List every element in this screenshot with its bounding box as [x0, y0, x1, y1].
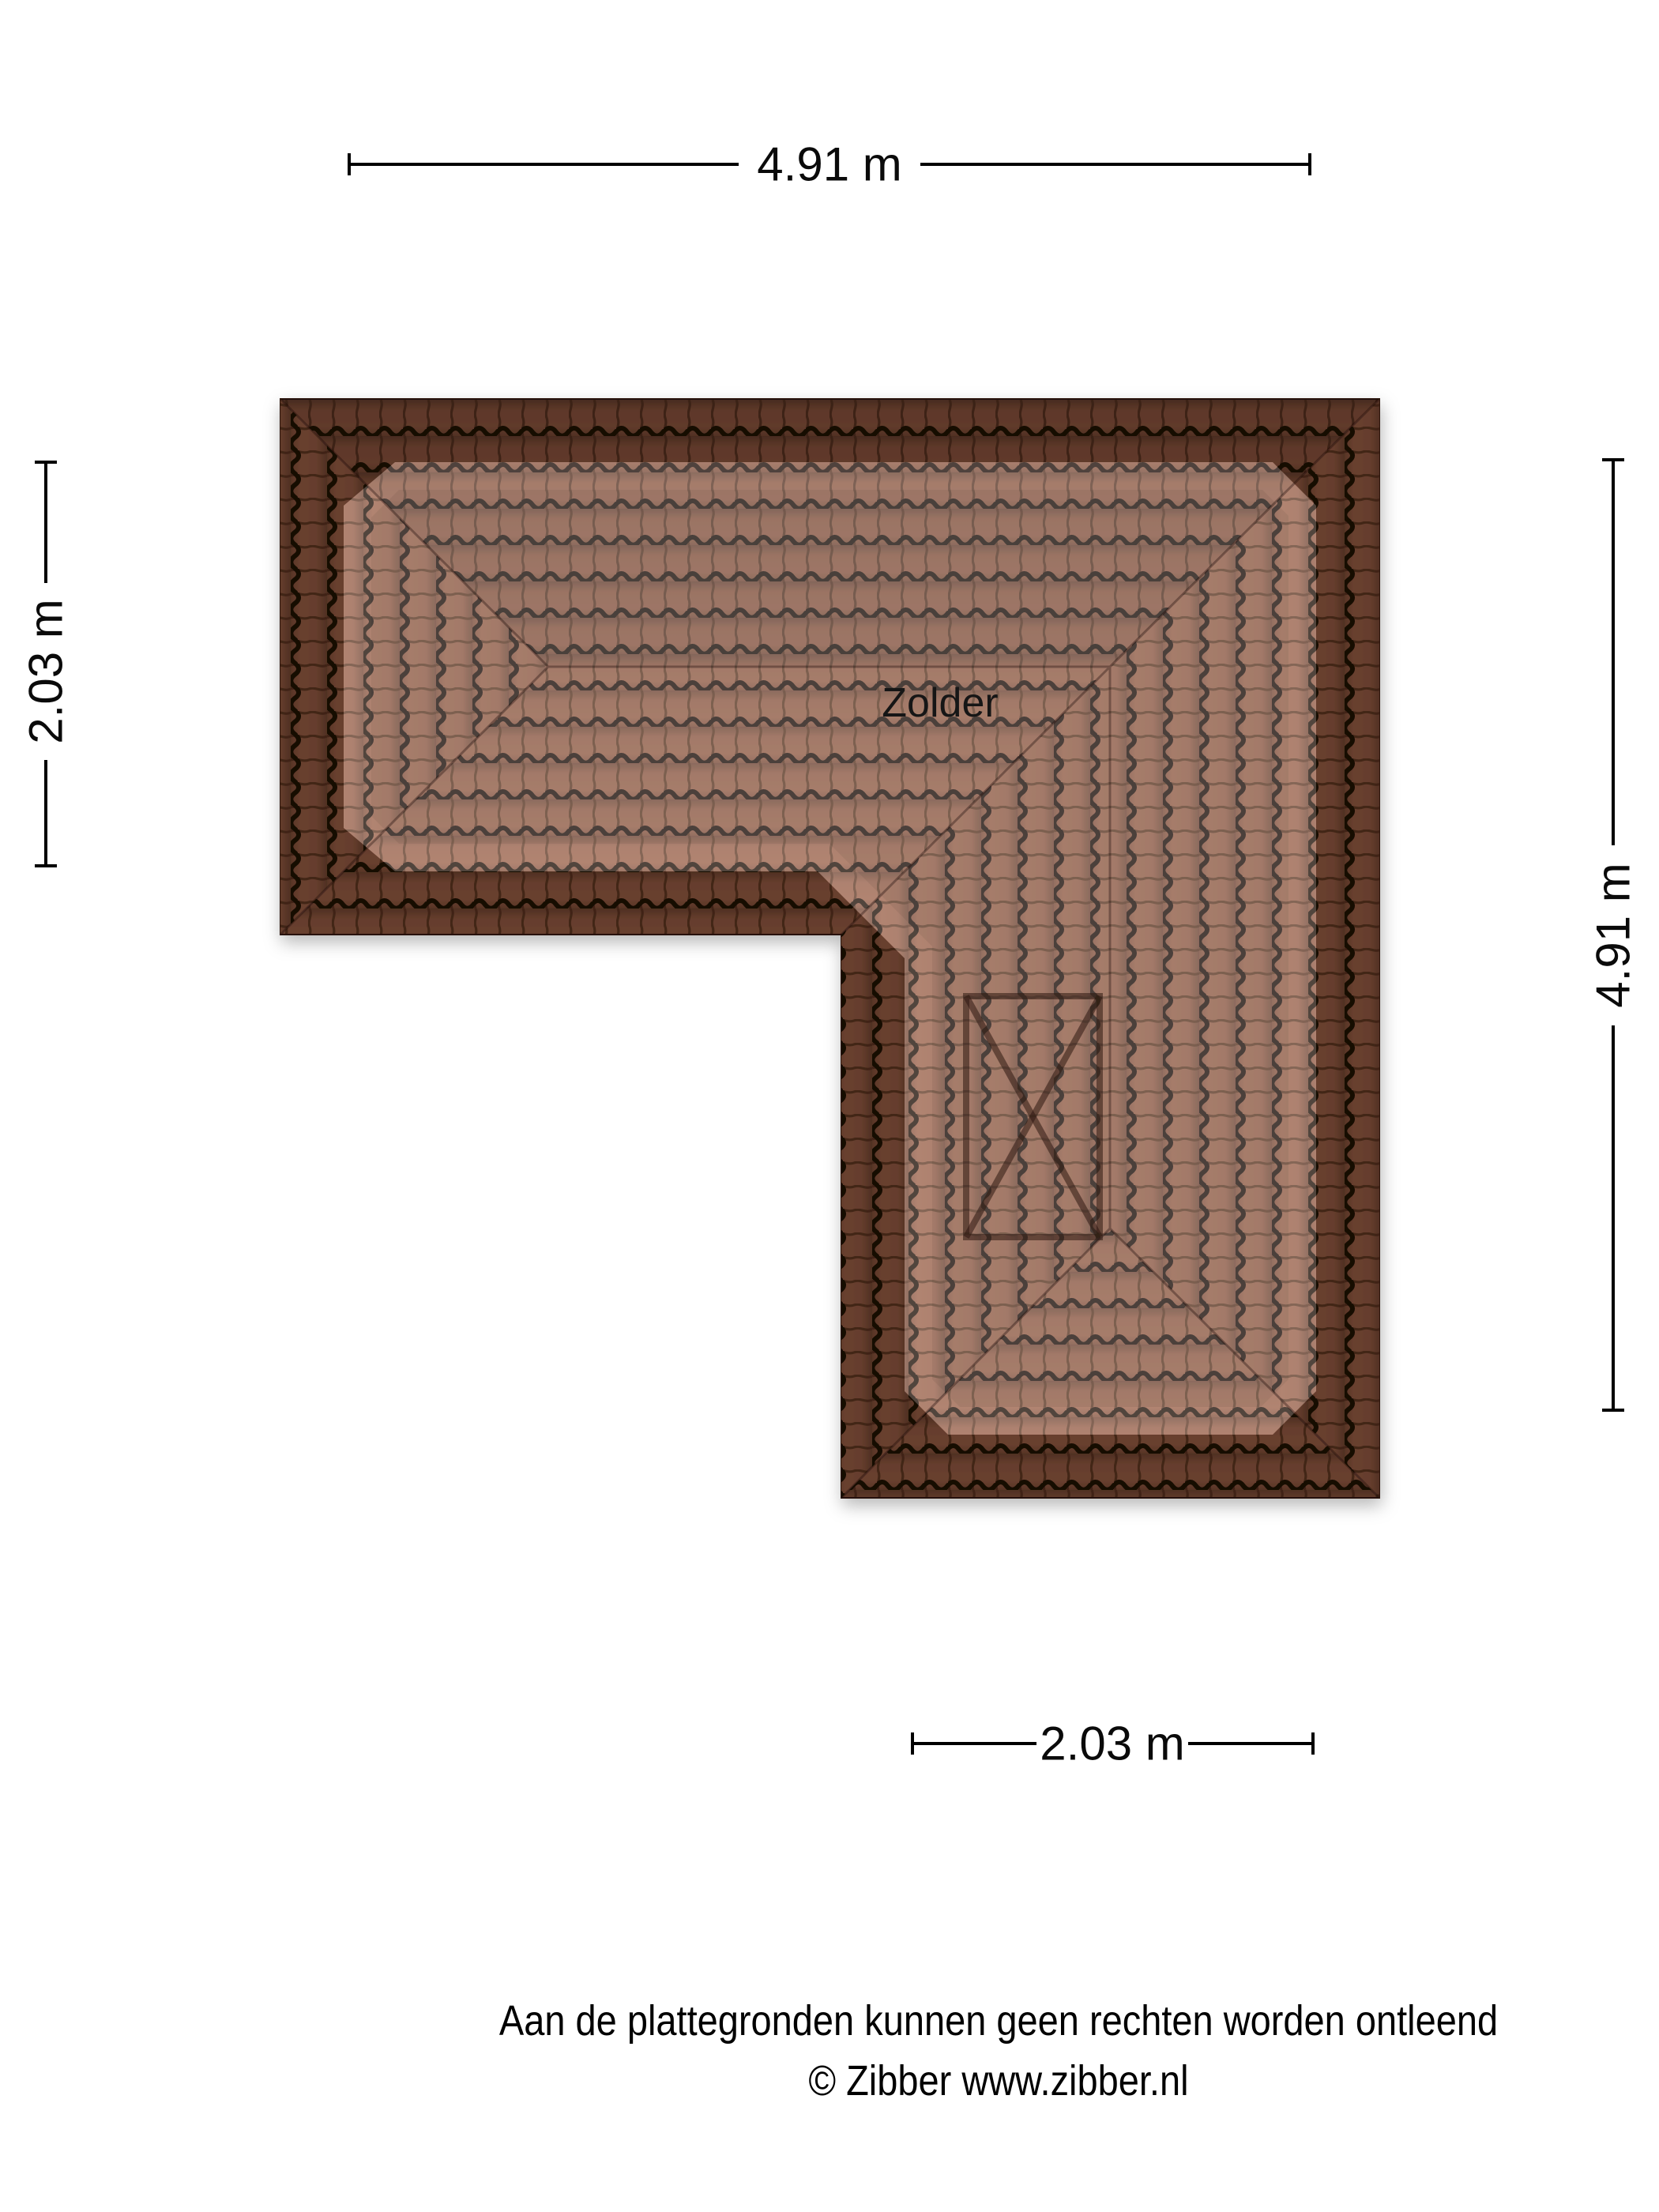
dimension-right-label: 4.91 m — [1587, 863, 1640, 1007]
dimension-left-label: 2.03 m — [20, 599, 73, 743]
dimension-lines — [35, 153, 1624, 1755]
roof-plan: Zolder — [280, 399, 1379, 1498]
room-label: Zolder — [882, 680, 998, 726]
footer-disclaimer-line: Aan de plattegronden kunnen geen rechten… — [499, 1991, 1498, 2051]
dimension-top-label: 4.91 m — [757, 138, 901, 191]
floor-plan-page: Zolder 4.91 — [0, 0, 1659, 2212]
floor-plan-svg: Zolder 4.91 — [0, 0, 1659, 2212]
dimension-bottom-label: 2.03 m — [1040, 1717, 1184, 1770]
footer-copyright: © Zibber www.zibber.nl — [499, 2051, 1498, 2111]
footer-disclaimer: Aan de plattegronden kunnen geen rechten… — [499, 1991, 1498, 2111]
